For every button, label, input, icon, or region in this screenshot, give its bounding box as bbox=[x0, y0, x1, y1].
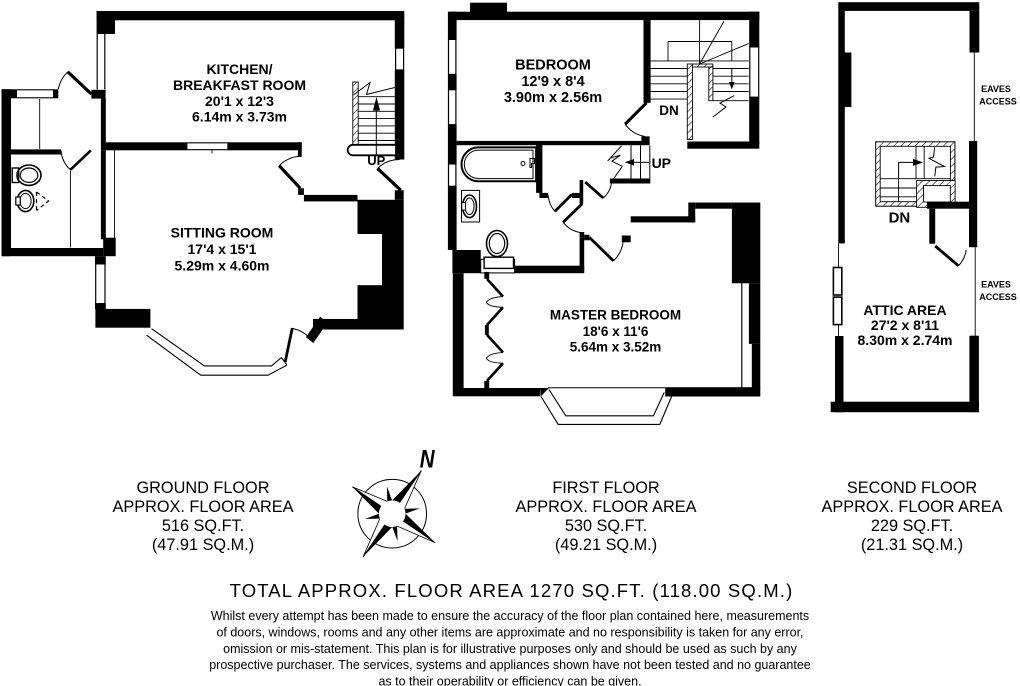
svg-text:SECOND FLOOR: SECOND FLOOR bbox=[847, 479, 977, 497]
svg-text:KITCHEN/: KITCHEN/ bbox=[206, 61, 272, 77]
svg-text:APPROX. FLOOR AREA: APPROX. FLOOR AREA bbox=[113, 498, 294, 516]
svg-text:DN: DN bbox=[659, 103, 679, 118]
svg-text:12'9 x 8'4: 12'9 x 8'4 bbox=[521, 74, 584, 90]
svg-text:5.29m x 4.60m: 5.29m x 4.60m bbox=[175, 257, 270, 273]
svg-text:prospective purchaser. The ser: prospective purchaser. The services, sys… bbox=[209, 658, 811, 672]
svg-text:omission or mis-statement. Thi: omission or mis-statement. This plan is … bbox=[223, 642, 797, 656]
svg-text:of doors, windows, rooms and a: of doors, windows, rooms and any other i… bbox=[216, 625, 803, 639]
svg-text:17'4 x 15'1: 17'4 x 15'1 bbox=[188, 241, 257, 257]
svg-text:5.64m x 3.52m: 5.64m x 3.52m bbox=[570, 339, 662, 354]
svg-text:GROUND FLOOR: GROUND FLOOR bbox=[137, 479, 270, 497]
svg-text:Whilst every attempt has been: Whilst every attempt has been made to en… bbox=[211, 609, 809, 623]
svg-text:APPROX. FLOOR AREA: APPROX. FLOOR AREA bbox=[516, 498, 697, 516]
svg-text:(21.31 SQ.M.): (21.31 SQ.M.) bbox=[861, 536, 963, 554]
svg-text:20'1 x 12'3: 20'1 x 12'3 bbox=[205, 93, 274, 109]
svg-text:3.90m x 2.56m: 3.90m x 2.56m bbox=[504, 90, 602, 106]
svg-text:UP: UP bbox=[367, 153, 385, 168]
svg-text:27'2 x 8'11: 27'2 x 8'11 bbox=[871, 317, 939, 333]
svg-text:BEDROOM: BEDROOM bbox=[515, 57, 591, 73]
svg-text:DN: DN bbox=[889, 209, 911, 226]
svg-text:ACCESS: ACCESS bbox=[979, 292, 1017, 302]
svg-text:ATTIC AREA: ATTIC AREA bbox=[863, 302, 946, 318]
svg-text:APPROX. FLOOR AREA: APPROX. FLOOR AREA bbox=[822, 498, 1003, 516]
svg-text:(47.91 SQ.M.): (47.91 SQ.M.) bbox=[152, 536, 254, 554]
svg-text:FIRST FLOOR: FIRST FLOOR bbox=[552, 479, 659, 497]
svg-text:ACCESS: ACCESS bbox=[979, 97, 1017, 107]
svg-text:MASTER BEDROOM: MASTER BEDROOM bbox=[550, 307, 681, 322]
svg-text:N: N bbox=[420, 444, 435, 472]
svg-text:BREAKFAST ROOM: BREAKFAST ROOM bbox=[173, 77, 306, 93]
svg-text:EAVES: EAVES bbox=[981, 84, 1011, 94]
svg-text:(49.21 SQ.M.): (49.21 SQ.M.) bbox=[555, 536, 657, 554]
svg-text:TOTAL APPROX. FLOOR AREA 1270: TOTAL APPROX. FLOOR AREA 1270 SQ.FT. (11… bbox=[230, 580, 794, 601]
svg-text:6.14m x 3.73m: 6.14m x 3.73m bbox=[192, 108, 287, 124]
svg-text:530 SQ.FT.: 530 SQ.FT. bbox=[565, 517, 647, 535]
svg-text:229 SQ.FT.: 229 SQ.FT. bbox=[871, 517, 953, 535]
svg-text:as to their operability or eff: as to their operability or efficiency ca… bbox=[378, 675, 641, 686]
svg-text:UP: UP bbox=[652, 155, 671, 171]
svg-text:516 SQ.FT.: 516 SQ.FT. bbox=[162, 517, 244, 535]
svg-text:EAVES: EAVES bbox=[981, 280, 1011, 290]
svg-text:8.30m x 2.74m: 8.30m x 2.74m bbox=[858, 332, 953, 348]
svg-text:18'6 x 11'6: 18'6 x 11'6 bbox=[583, 324, 649, 339]
svg-text:SITTING ROOM: SITTING ROOM bbox=[171, 224, 274, 240]
